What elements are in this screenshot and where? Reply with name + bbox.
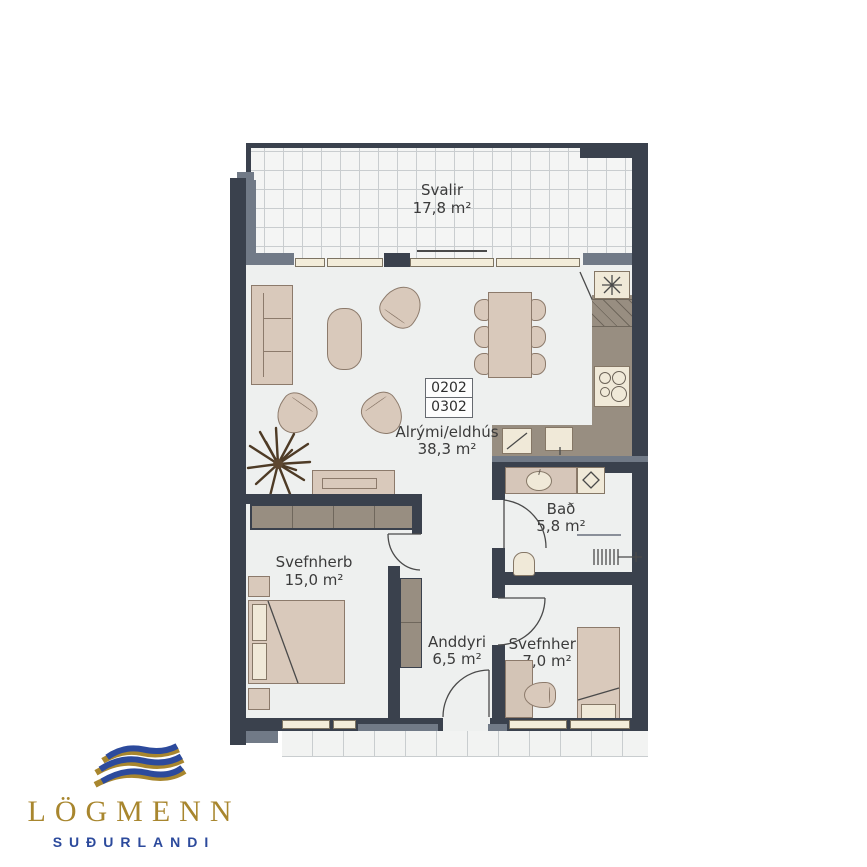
sofa-backrest-line (263, 293, 264, 377)
coffee-table (327, 308, 362, 370)
logo-waves-icon (82, 740, 197, 790)
dining-chair (474, 353, 489, 375)
stove-burner (600, 387, 610, 397)
media-console-inner (322, 478, 377, 489)
wardrobe (250, 504, 414, 530)
door-arc-bathroom (495, 495, 555, 555)
balcony-wall-grey-right (583, 253, 632, 265)
desk-chair (524, 682, 556, 708)
dining-chair (474, 326, 489, 348)
dishwasher-icon (504, 430, 530, 452)
logo-subtitle: SUÐURLANDI (14, 834, 254, 850)
balcony-window (496, 258, 580, 267)
door-arc-entrance (440, 668, 494, 722)
bed-fold-line (577, 686, 620, 702)
stove (594, 366, 630, 407)
stove-burner (611, 386, 627, 402)
room-label-svalir: Svalir (392, 181, 492, 199)
threshold-grey (246, 731, 278, 743)
unit-number-box: 0202 (425, 378, 473, 399)
window (570, 720, 630, 729)
window (333, 720, 356, 729)
room-label-svefnherb1: Svefnherb (254, 553, 374, 571)
balcony-window (327, 258, 383, 267)
logo-brand: LÖGMENN (8, 795, 260, 829)
floorplan-page: Svalir 17,8 m² (0, 0, 867, 867)
nightstand (248, 576, 270, 597)
outer-wall-left (230, 178, 246, 745)
outer-wall-right (632, 148, 648, 730)
extractor-asterisk-icon (600, 274, 624, 296)
window (509, 720, 567, 729)
room-label-alrymi: Alrými/eldhús (387, 423, 507, 441)
walkway-tiles (282, 731, 648, 757)
tall-cabinet (592, 299, 632, 327)
balcony-sliding-door (410, 258, 494, 267)
room-area-alrymi: 38,3 m² (387, 440, 507, 458)
unit-number-box: 0302 (425, 397, 473, 418)
room-area-svalir: 17,8 m² (392, 199, 492, 217)
bed-pillow (252, 604, 267, 641)
balcony-railing-top (246, 143, 580, 148)
plant-icon (246, 426, 312, 502)
bedroom1-wall-top (246, 494, 422, 504)
dining-chair (474, 299, 489, 321)
hall-closet-divider (401, 622, 421, 623)
shower-drain-icon (581, 470, 601, 490)
stove-burner (612, 371, 626, 385)
nightstand (248, 688, 270, 710)
sliding-door-track-line (417, 250, 487, 252)
balcony-door-pier (384, 253, 410, 267)
sofa-cushion-line (263, 318, 291, 319)
bedroom1-wall-right (388, 566, 400, 718)
sofa (251, 285, 293, 385)
toilet (513, 552, 535, 576)
stove-burner (599, 372, 611, 384)
sofa-cushion-line (263, 351, 291, 352)
room-area-svefnherb1: 15,0 m² (254, 571, 374, 589)
towel-rail (577, 534, 621, 536)
radiator-icon (592, 545, 644, 571)
bed-pillow (252, 643, 267, 680)
bed-fold-line (266, 600, 300, 684)
dining-table (488, 292, 532, 378)
balcony-window (295, 258, 325, 267)
window (282, 720, 330, 729)
